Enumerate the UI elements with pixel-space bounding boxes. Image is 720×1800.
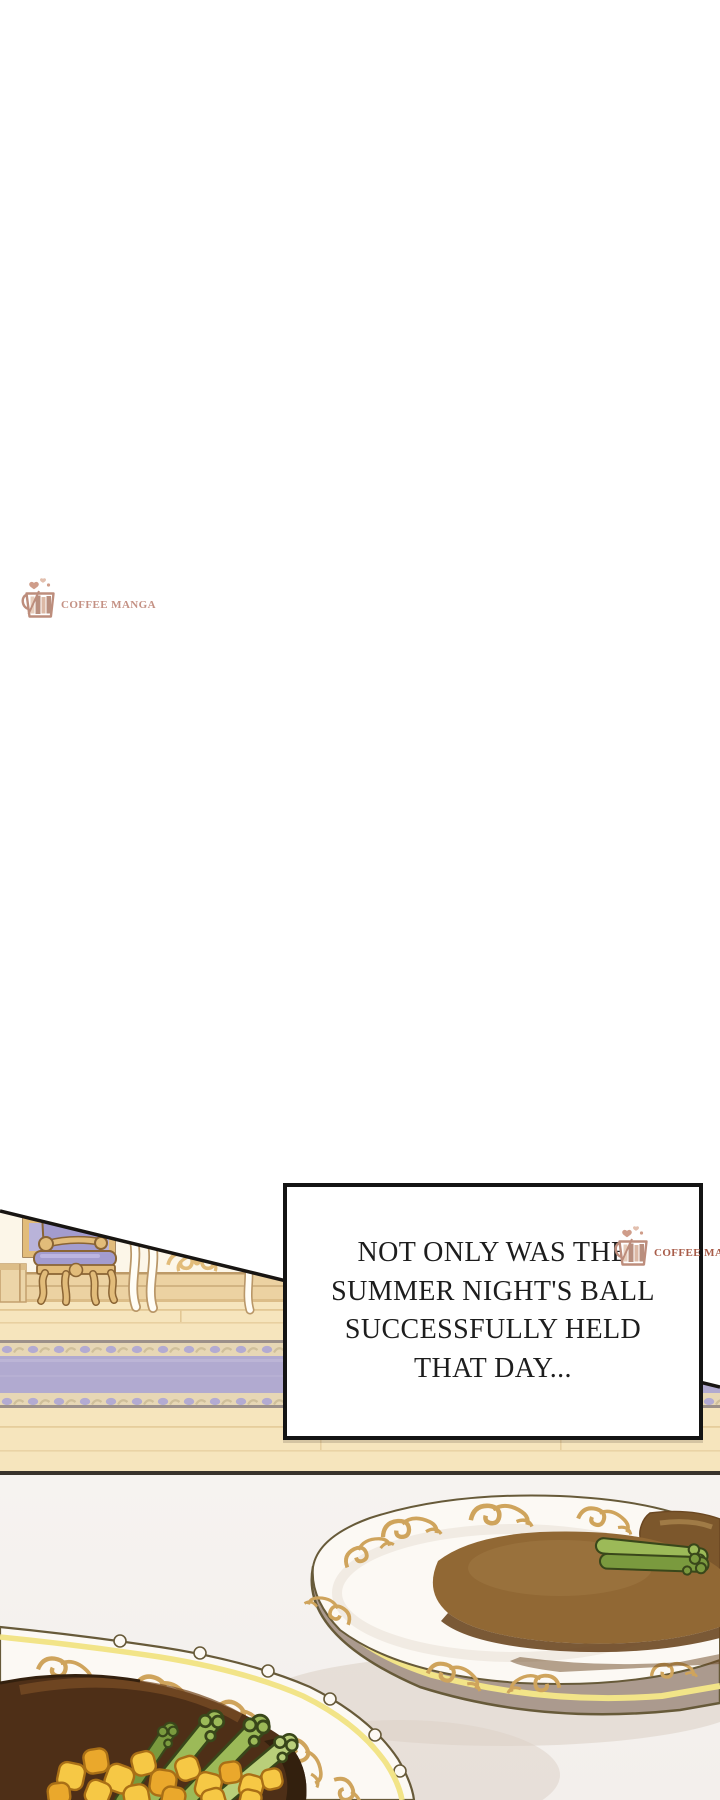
narration-line: NOT ONLY WAS THE [287, 1234, 699, 1273]
book-spine [47, 596, 52, 614]
book-spine [42, 597, 46, 614]
mug-body [27, 594, 54, 617]
book-spine [31, 597, 35, 614]
narration-line: SUMMER NIGHT'S BALL [287, 1273, 699, 1312]
narration-box: NOT ONLY WAS THE SUMMER NIGHT'S BALL SUC… [283, 1183, 703, 1440]
book-spine [36, 596, 41, 615]
dinner-plates-panel [0, 1475, 720, 1800]
manga-page: { "watermarks": { "top": { "brand": "COF… [0, 0, 720, 1800]
pen-icon [29, 591, 40, 614]
watermark-brand-text: COFFEE MANGA [61, 599, 156, 611]
pedestal [0, 1264, 26, 1302]
narration-line: SUCCESSFULLY HELD [287, 1311, 699, 1350]
heart-dot-icon [47, 583, 50, 586]
mug-handle [23, 595, 29, 609]
narration-line: THAT DAY... [287, 1350, 699, 1389]
coffee-manga-watermark-top: COFFEE MANGA [20, 576, 156, 622]
coffee-mug-icon [20, 576, 60, 622]
heart-icon [29, 582, 39, 589]
heart-icon [40, 578, 46, 583]
